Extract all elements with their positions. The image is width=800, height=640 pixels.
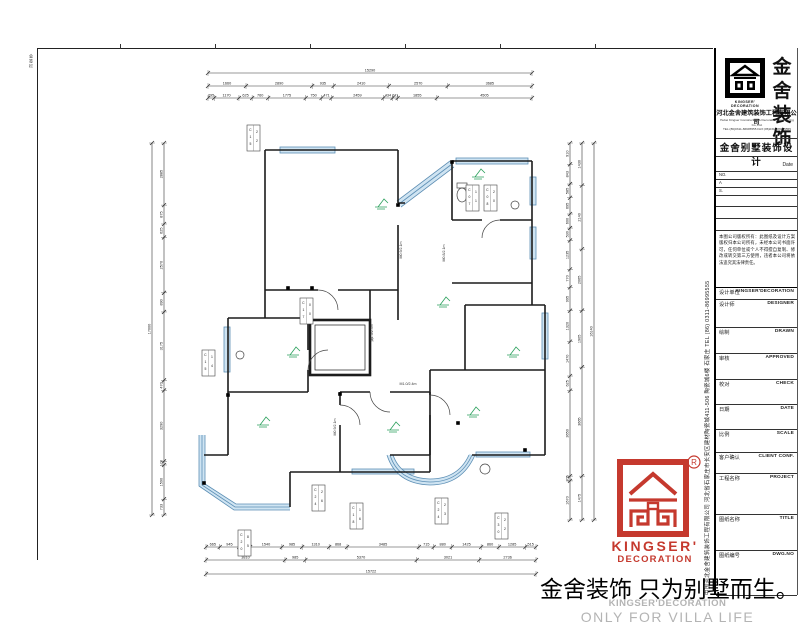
dimension-value: 2570 xyxy=(160,261,164,269)
window-tag-char: 1 xyxy=(211,355,213,359)
dimension-value: 1905 xyxy=(578,335,582,343)
brand-en: KINGSER'DECORATION xyxy=(560,598,775,609)
window-tag-char: 4 xyxy=(314,502,316,506)
dimension-value: 625 xyxy=(242,94,248,98)
date-label: Date xyxy=(782,162,793,168)
field-label-cn: 校对 xyxy=(719,381,729,388)
field-row-drawn: 绘制DRAWN xyxy=(716,328,797,354)
level-marker-icon xyxy=(257,417,270,427)
border-tick xyxy=(215,44,216,49)
sheet-border-left xyxy=(37,48,38,560)
rule xyxy=(716,171,797,172)
window-tag-char: 5 xyxy=(247,544,249,548)
dimension-value: 760 xyxy=(257,94,263,98)
signoff-strip: 会签栏 xyxy=(28,54,34,69)
dimension-value: 3175 xyxy=(160,342,164,350)
field-label-cn: 绘制 xyxy=(719,329,729,336)
field-row-title: 图纸名称TITLE xyxy=(716,515,797,551)
window-tag-char: 1 xyxy=(249,135,251,139)
window-tag-char: 0 xyxy=(309,303,311,307)
dimension-value: 935 xyxy=(320,82,326,86)
window-tag: C1522 xyxy=(247,125,260,151)
dimension-value: 868 xyxy=(335,543,341,547)
dimension-value: 241 xyxy=(392,94,398,98)
dimension-value: 665 xyxy=(210,543,216,547)
window-tag-char: 6 xyxy=(359,517,361,521)
field-label-cn: 日期 xyxy=(719,406,729,413)
dimension-value: 1590 xyxy=(160,478,164,486)
window-tag: C2085 xyxy=(238,530,251,556)
dimension-value: 2065 xyxy=(578,276,582,284)
window-tag-char: 2 xyxy=(504,518,506,522)
window-tag-char: 2 xyxy=(504,527,506,531)
window-tag: C0820 xyxy=(484,185,497,211)
structural-column xyxy=(202,481,206,485)
dimension-value: 1310 xyxy=(311,543,319,547)
floor-plan: 1529016602890935241025703685295117062576… xyxy=(140,55,610,585)
window-tag-char: 4 xyxy=(211,364,213,368)
level-marker-icon xyxy=(387,422,400,432)
dimension-value: 2459 xyxy=(353,94,361,98)
rule xyxy=(716,206,797,207)
field-label-en: CLIENT CONF. xyxy=(759,454,794,459)
dimension-value: 1540 xyxy=(262,543,270,547)
window-tag-char: 1 xyxy=(475,190,477,194)
dimension-value: 770 xyxy=(566,275,570,281)
window-tag-char: 3 xyxy=(444,512,446,516)
window-tag-char: 1 xyxy=(359,508,361,512)
seal-text-1: KINGSER' xyxy=(600,538,710,554)
window-tag-char: 2 xyxy=(256,139,258,143)
field-label-cn: 工程名称 xyxy=(719,475,740,482)
dimension-value: 750 xyxy=(310,94,316,98)
brand-cn: 金舍 装饰 xyxy=(766,56,798,151)
field-label-en: DATE xyxy=(780,406,794,411)
window-tag-char: 1 xyxy=(352,513,354,517)
door-size-label: M0.8/2.1m xyxy=(442,245,446,262)
dimension-value: 1660 xyxy=(223,82,231,86)
dimension-value: 205 xyxy=(566,475,570,481)
window-tag-char: 1 xyxy=(475,199,477,203)
window-tag-char: 0 xyxy=(309,312,311,316)
field-row-project: 工程名称PROJECT xyxy=(716,474,797,515)
dimension-value: 1855 xyxy=(413,94,421,98)
title-block: KINGSER'DECORATION 金舍 装饰 河北金舍建筑装饰工程有限公司 … xyxy=(714,48,798,595)
dimension-value: 2885 xyxy=(160,170,164,178)
dimension-value: 170 xyxy=(160,460,164,466)
structural-column xyxy=(310,286,314,290)
kingser-logo-black-icon xyxy=(725,58,765,98)
field-label-cn: 图纸编号 xyxy=(719,552,740,559)
dimension-value: 17000 xyxy=(148,324,152,335)
dimension-value: 715 xyxy=(423,543,429,547)
window-tag-char: 2 xyxy=(314,495,316,499)
dimension-value: 4505 xyxy=(480,94,488,98)
field-row-approved: 审核APPROVED xyxy=(716,354,797,380)
dimension-value: 985 xyxy=(289,543,295,547)
window-tag-char: 7 xyxy=(468,202,470,206)
window-tag-char: 2 xyxy=(240,540,242,544)
dimension-value: 625 xyxy=(566,380,570,386)
window-tag: C3022 xyxy=(495,513,508,539)
window-tag-char: 0 xyxy=(493,199,495,203)
border-tick xyxy=(120,44,121,49)
dimension-value: 471 xyxy=(323,94,329,98)
window-tag-char: 0 xyxy=(240,547,242,551)
dimension-value: 2570 xyxy=(414,82,422,86)
dimension-value: 1235 xyxy=(566,251,570,259)
dimension-value: 1475 xyxy=(578,494,582,502)
window-tag: C1700 xyxy=(300,298,313,324)
structural-column xyxy=(286,286,290,290)
window-tag-char: 0 xyxy=(468,195,470,199)
field-label-en: SCALE xyxy=(777,431,794,436)
window-tag-char: 1 xyxy=(302,308,304,312)
dimension-value: 530 xyxy=(566,231,570,237)
border-tick xyxy=(310,44,311,49)
level-marker-icon xyxy=(375,199,388,209)
window-tag-char: 5 xyxy=(204,367,206,371)
dimension-value: 16140 xyxy=(590,326,594,337)
dimension-value: 2140 xyxy=(578,213,582,221)
dimension-value: 600 xyxy=(566,218,570,224)
brand-slogan-en: KINGSER'DECORATION ONLY FOR VILLA LIFE xyxy=(560,598,775,625)
dimension-value: 625 xyxy=(160,228,164,234)
window-tag-char: 2 xyxy=(321,490,323,494)
field-label-cn: 图纸名称 xyxy=(719,516,740,523)
field-label-en: APPROVED xyxy=(765,355,794,360)
structural-column xyxy=(396,203,400,207)
dimension-value: 1775 xyxy=(283,94,291,98)
window-tag: C2423 xyxy=(435,498,448,524)
rule xyxy=(716,187,797,188)
rev-s-label: S. xyxy=(719,188,723,193)
field-label-cn: 设计师 xyxy=(719,301,735,308)
dimension-value: 695 xyxy=(566,203,570,209)
dimension-value: 15290 xyxy=(365,69,376,73)
dimension-value: 880 xyxy=(440,543,446,547)
rev-no-label: NO. xyxy=(719,172,726,177)
window-tag-char: 6 xyxy=(321,499,323,503)
dimension-value: 585 xyxy=(566,188,570,194)
dimension-value: 1430 xyxy=(578,160,582,168)
dimension-value: 1170 xyxy=(223,94,231,98)
rule xyxy=(716,230,797,231)
window-tag-char: 5 xyxy=(249,142,251,146)
field-label-en: DESIGNER xyxy=(767,301,794,306)
window-tag-char: 2 xyxy=(444,503,446,507)
window-tag-char: 2 xyxy=(437,508,439,512)
dimension-value: 995 xyxy=(566,296,570,302)
field-row-date: 日期DATE xyxy=(716,405,797,430)
registered-mark: R xyxy=(691,458,697,467)
dimension-value: 1285 xyxy=(508,543,516,547)
field-label-cn: 客户确认 xyxy=(719,454,740,461)
company-address-en: Hebei Kingser Construction & Decoration … xyxy=(718,118,796,132)
dimension-value: 3290 xyxy=(160,422,164,430)
dimension-value: 1470 xyxy=(566,355,570,363)
dimension-value: 910 xyxy=(566,150,570,156)
window-tag-char: 2 xyxy=(493,190,495,194)
dimension-value: 3485 xyxy=(379,543,387,547)
field-label-cn: 审核 xyxy=(719,355,729,362)
structural-column xyxy=(226,393,230,397)
structural-column xyxy=(523,448,527,452)
field-row-client-conf-: 客户确认CLIENT CONF. xyxy=(716,453,797,474)
dimension-value: 875 xyxy=(160,211,164,217)
window-tag: C0711 xyxy=(466,185,479,211)
dimension-value: 5370 xyxy=(357,556,365,560)
field-label-en: TITLE xyxy=(780,516,794,521)
door-size-label: M0.9/2.1m xyxy=(399,242,403,259)
door-size-label: M1.0/2.4m xyxy=(400,382,417,386)
field-label-en: KINGSER'DECORATION xyxy=(736,289,795,294)
dimension-value: 295 xyxy=(208,94,214,98)
field-label-en: PROJECT xyxy=(770,475,794,480)
rule xyxy=(716,138,797,139)
window-tag-char: 2 xyxy=(256,130,258,134)
field-row-designer: 设计师DESIGNER xyxy=(716,300,797,328)
dimension-value: 3665 xyxy=(578,417,582,425)
window-tag-char: 0 xyxy=(486,195,488,199)
drawing-sheet: 会签栏 xyxy=(0,0,800,640)
window-tag: C1514 xyxy=(202,350,215,376)
level-marker-icon xyxy=(437,297,450,307)
dimension-value: 3685 xyxy=(486,82,494,86)
dimension-value: 1670 xyxy=(566,496,570,504)
dimension-value: 2736 xyxy=(503,556,511,560)
field-label-en: DRAWN xyxy=(775,329,794,334)
dimension-value: 985 xyxy=(292,556,298,560)
window-tag-char: 1 xyxy=(204,360,206,364)
copyright-notice: 本图公司版权所有：此图纸及设计方案版权归本公司所有，未经本公司书面许可，任何单位… xyxy=(719,234,795,266)
dimension-value: 2410 xyxy=(357,82,365,86)
dimension-value: 470 xyxy=(160,382,164,388)
structural-column xyxy=(456,421,460,425)
dimension-value: 3650 xyxy=(566,429,570,437)
dimension-value: 843 xyxy=(566,171,570,177)
door-arcs xyxy=(236,183,519,474)
dimension-value: 890 xyxy=(160,299,164,305)
sheet-border-top xyxy=(37,48,713,49)
window-tag-char: 3 xyxy=(497,523,499,527)
field-row-scale: 比例SCALE xyxy=(716,430,797,453)
rule xyxy=(716,218,797,219)
level-marker-icon xyxy=(467,407,480,417)
window-tag-char: 8 xyxy=(247,535,249,539)
window-tag: C2426 xyxy=(312,485,325,511)
dimension-value: 860 xyxy=(487,543,493,547)
field-row-kingser-decoration: 设计单位KINGSER'DECORATION xyxy=(716,288,797,300)
slogan-en: ONLY FOR VILLA LIFE xyxy=(560,609,775,625)
window-tag-char: 8 xyxy=(486,202,488,206)
rev-a-label: A xyxy=(719,180,722,185)
level-marker-icon xyxy=(507,347,520,357)
door-size-label: M0.9/2.1m xyxy=(333,419,337,436)
border-tick xyxy=(595,44,596,49)
level-marker-icon xyxy=(472,169,485,179)
level-marker-icon xyxy=(287,347,300,357)
generated-annotations: 1529016602890935241025703685295117062576… xyxy=(148,69,597,577)
dimension-value: 945 xyxy=(226,543,232,547)
field-label-en: DWG.NO xyxy=(773,552,794,557)
dimension-value: 733 xyxy=(160,504,164,510)
dimension-value: 15722 xyxy=(366,570,377,574)
door-size-label: 洞1.5/2.4m xyxy=(369,324,374,342)
dimension-value: 1425 xyxy=(462,543,470,547)
dimension-value: 434 xyxy=(385,94,391,98)
field-label-en: CHECK xyxy=(776,381,794,386)
rule xyxy=(716,179,797,180)
rule xyxy=(716,195,797,196)
window-tag: C1816 xyxy=(350,503,363,529)
rule xyxy=(716,156,797,157)
kingser-seal: R KINGSER' DECORATION xyxy=(600,450,710,575)
border-tick xyxy=(405,44,406,49)
structural-column xyxy=(338,392,342,396)
window-tag-char: 4 xyxy=(437,515,439,519)
window-tag-char: 7 xyxy=(302,315,304,319)
field-row-check: 校对CHECK xyxy=(716,380,797,405)
dimension-value: 515 xyxy=(528,543,534,547)
title-block-fields: 设计单位KINGSER'DECORATION设计师DESIGNER绘制DRAWN… xyxy=(716,287,797,596)
dimension-value: 1320 xyxy=(566,322,570,330)
seal-text-2: DECORATION xyxy=(600,554,710,565)
window-tag-char: 0 xyxy=(497,530,499,534)
structural-column xyxy=(450,160,454,164)
window-tag-char: 8 xyxy=(352,520,354,524)
dimension-value: 3021 xyxy=(444,556,452,560)
field-label-cn: 比例 xyxy=(719,431,729,438)
dimension-value: 2890 xyxy=(275,82,283,86)
border-tick xyxy=(500,44,501,49)
